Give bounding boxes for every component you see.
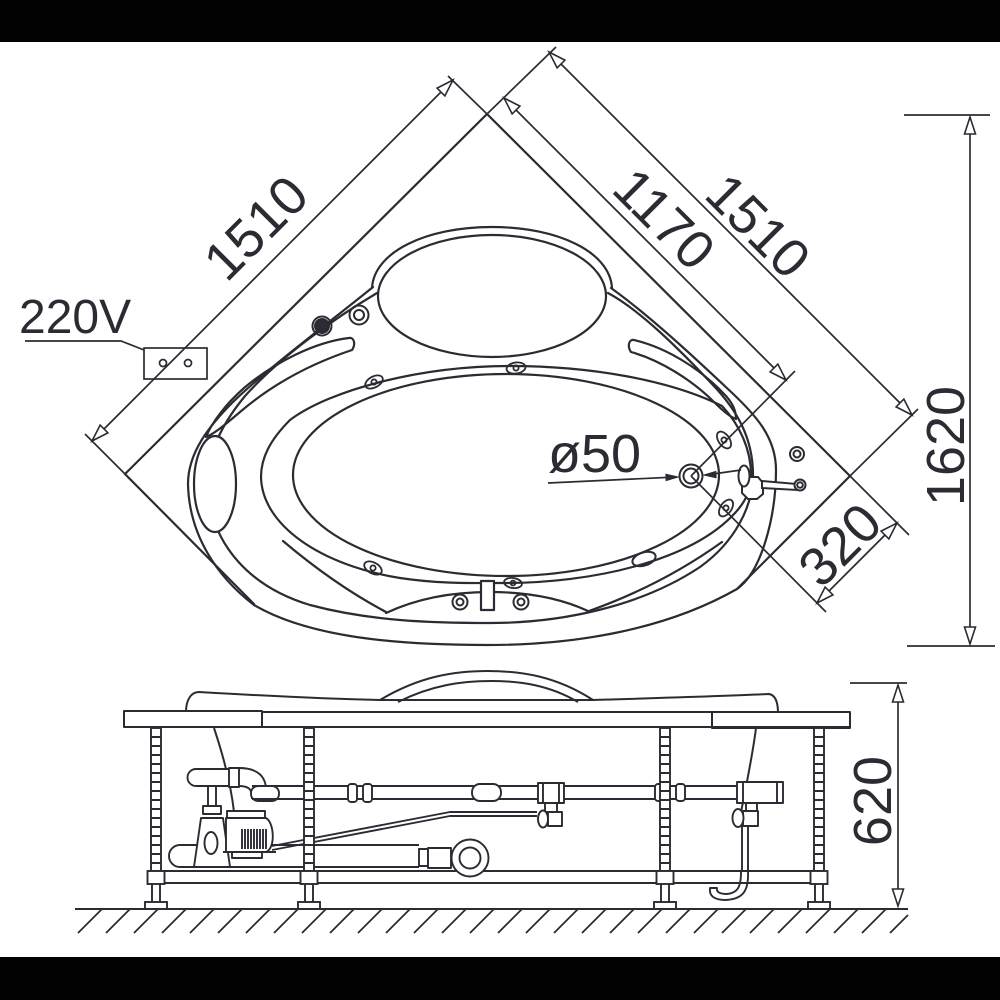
- svg-text:620: 620: [843, 756, 903, 846]
- svg-text:220V: 220V: [19, 291, 131, 344]
- svg-text:ø50: ø50: [548, 424, 641, 484]
- svg-text:1620: 1620: [916, 386, 976, 506]
